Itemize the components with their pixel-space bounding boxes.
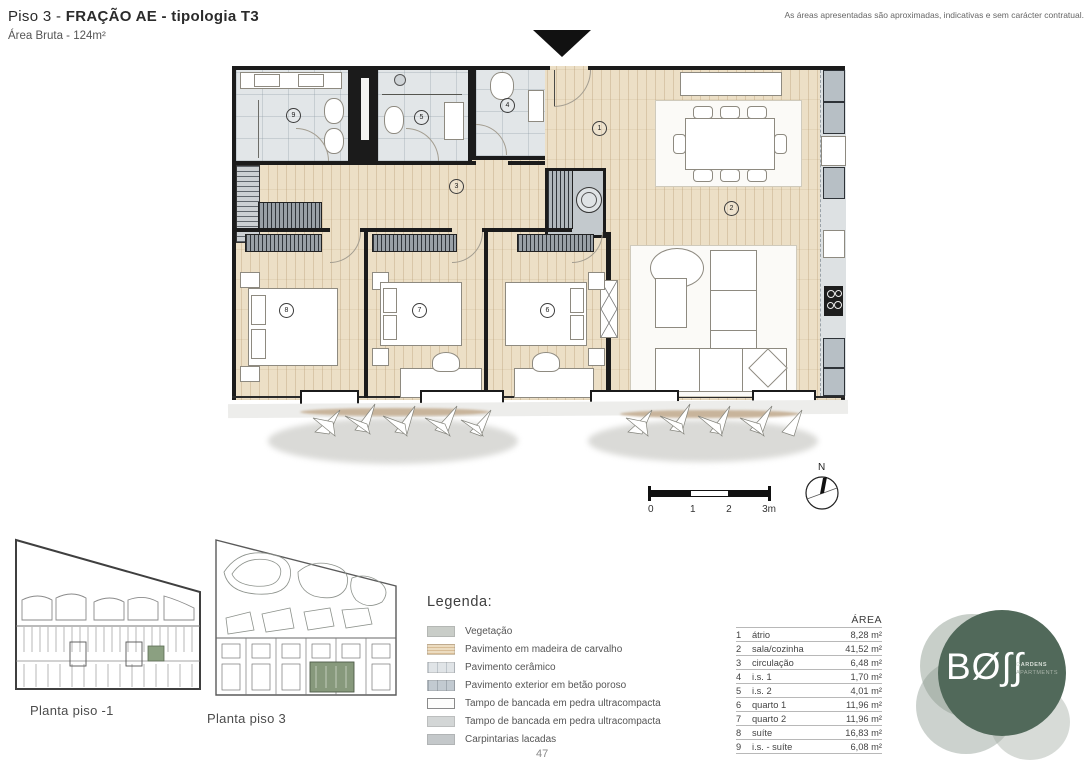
areas-table: ÁREA 1átrio8,28 m² 2sala/cozinha41,52 m²… (736, 612, 882, 754)
legend-item: Pavimento em madeira de carvalho (427, 644, 697, 654)
shelving (548, 171, 573, 229)
legend-label: Pavimento exterior em betão poroso (465, 680, 626, 691)
door-arc-entrance (554, 70, 591, 107)
nightstand (372, 348, 389, 366)
stone-countertop-grey-swatch (427, 716, 455, 727)
door-arc-bed7 (452, 232, 483, 263)
row-num: 7 (736, 712, 752, 726)
room-number-1: 1 (592, 121, 607, 136)
kitchen-cabinet (823, 368, 845, 396)
row-name: i.s. 1 (752, 670, 828, 684)
page-number: 47 (536, 748, 548, 760)
chair (432, 352, 460, 372)
row-area: 6,08 m² (828, 740, 882, 754)
room-number-5: 5 (414, 110, 429, 125)
table-row: 7quarto 211,96 m² (736, 712, 882, 726)
table-row: 3circulação6,48 m² (736, 656, 882, 670)
legend-label: Tampo de bancada em pedra ultracompacta (465, 698, 661, 709)
row-name: i.s. 2 (752, 684, 828, 698)
chair (720, 106, 740, 119)
row-num: 8 (736, 726, 752, 740)
kitchen-cabinet (823, 70, 845, 102)
row-area: 8,28 m² (828, 628, 882, 642)
pillow (251, 329, 266, 359)
areas-header-row: ÁREA (736, 612, 882, 628)
scale-label-0: 0 (648, 504, 654, 515)
row-num: 2 (736, 642, 752, 656)
north-label: N (818, 462, 848, 473)
nightstand (588, 348, 605, 366)
wall (360, 228, 452, 232)
wall (364, 232, 368, 398)
room-number-8: 8 (279, 303, 294, 318)
ceramic-floor-swatch (427, 662, 455, 673)
row-name: circulação (752, 656, 828, 670)
door-leaf (554, 70, 555, 106)
chair (532, 352, 560, 372)
row-area: 16,83 m² (828, 726, 882, 740)
table-row: 4i.s. 11,70 m² (736, 670, 882, 684)
scale-segment (690, 490, 729, 497)
chair (693, 106, 713, 119)
row-area: 4,01 m² (828, 684, 882, 698)
burner (835, 290, 842, 297)
corridor-wardrobe (258, 202, 322, 230)
miniplan-piso3-label: Planta piso 3 (207, 711, 402, 726)
row-area: 6,48 m² (828, 656, 882, 670)
logo-tagline-1: GARDENS (1016, 662, 1047, 668)
sink (254, 74, 280, 87)
disclaimer-text: As áreas apresentadas são aproximadas, i… (784, 10, 1084, 20)
scale-segment (651, 490, 690, 497)
shower-screen (258, 100, 259, 158)
vegetation-cluster (295, 392, 505, 448)
legend-label: Pavimento cerâmico (465, 662, 556, 673)
table-row: 2sala/cozinha41,52 m² (736, 642, 882, 656)
row-name: suíte (752, 726, 828, 740)
kitchen-cabinet (823, 167, 845, 199)
kitchen-cabinet (823, 102, 845, 134)
chair (747, 169, 767, 182)
legend-item: Tampo de bancada em pedra ultracompacta (427, 698, 697, 708)
table-row: 6quarto 111,96 m² (736, 698, 882, 712)
legend-label: Vegetação (465, 626, 512, 637)
page-title-bold: FRAÇÃO AE - tipologia T3 (66, 8, 259, 25)
cooktop (824, 286, 843, 316)
table-row: 9i.s. - suíte6,08 m² (736, 740, 882, 754)
room-suite-bathroom: 9 (236, 70, 352, 165)
areas-header: ÁREA (736, 612, 882, 628)
row-name: i.s. - suíte (752, 740, 828, 754)
row-area: 1,70 m² (828, 670, 882, 684)
legend-item: Carpintarias lacadas (427, 734, 697, 744)
logo-tagline-2: APARTMENTS (1016, 670, 1058, 676)
miniplan-minus1-drawing (8, 534, 208, 692)
sink (298, 74, 324, 87)
legend-label: Pavimento em madeira de carvalho (465, 644, 622, 655)
legend-label: Carpintarias lacadas (465, 734, 556, 745)
row-name: quarto 2 (752, 712, 828, 726)
north-arrow: N (800, 462, 848, 514)
page-title: Piso 3 - FRAÇÃO AE - tipologia T3 (8, 8, 259, 25)
door-arc-bed6 (572, 232, 603, 263)
wall (330, 161, 408, 165)
wardrobe (245, 234, 322, 252)
floor-plan: 9 5 4 (232, 66, 845, 400)
pillow (570, 288, 584, 313)
room-number-7: 7 (412, 303, 427, 318)
kitchen-cabinet (823, 338, 845, 368)
stone-countertop-white-swatch (427, 698, 455, 709)
legend-label: Tampo de bancada em pedra ultracompacta (465, 716, 661, 727)
table-row: 8suíte16,83 m² (736, 726, 882, 740)
nightstand (240, 366, 260, 382)
shower-drain (394, 74, 406, 86)
washing-machine-drum (581, 192, 597, 208)
room-number-9: 9 (286, 108, 301, 123)
wall (482, 228, 572, 232)
nightstand (588, 272, 605, 290)
chair (747, 106, 767, 119)
brochure-page: { "header": { "title_prefix": "Piso 3 - … (0, 0, 1092, 770)
coffee-table (655, 278, 687, 328)
scale-label-3: 3m (762, 504, 776, 515)
shaft-wall (352, 70, 378, 165)
miniplan-minus1-label: Planta piso -1 (30, 703, 208, 718)
room-number-4: 4 (500, 98, 515, 113)
row-num: 4 (736, 670, 752, 684)
room-number-2: 2 (724, 201, 739, 216)
wall (236, 228, 330, 232)
chair (673, 134, 686, 154)
chair (693, 169, 713, 182)
wall (588, 66, 845, 70)
desk (514, 368, 594, 398)
sink (528, 90, 544, 122)
legend-item: Vegetação (427, 626, 697, 636)
sofa-cushion-line (711, 330, 756, 331)
table-row: 1átrio8,28 m² (736, 628, 882, 642)
legend-item: Pavimento cerâmico (427, 662, 697, 672)
chair (720, 169, 740, 182)
row-area: 41,52 m² (828, 642, 882, 656)
row-num: 5 (736, 684, 752, 698)
row-num: 9 (736, 740, 752, 754)
sofa-cushion-line (711, 290, 756, 291)
scale-label-2: 2 (726, 504, 732, 515)
sofa-cushion-line (742, 349, 743, 391)
page-title-prefix: Piso 3 - (8, 8, 66, 25)
row-num: 6 (736, 698, 752, 712)
row-num: 1 (736, 628, 752, 642)
shower-screen (382, 94, 462, 95)
chair (774, 134, 787, 154)
legend-item: Tampo de bancada em pedra ultracompacta (427, 716, 697, 726)
dining-table (685, 118, 775, 170)
kitchen-sink (823, 230, 845, 258)
scale-segment (729, 490, 768, 497)
miniplan-piso3-drawing (210, 532, 402, 698)
row-num: 3 (736, 656, 752, 670)
room-number-6: 6 (540, 303, 555, 318)
scale-label-1: 1 (690, 504, 696, 515)
miniplan-piso-minus1: Planta piso -1 (8, 534, 208, 718)
lacquered-joinery-swatch (427, 734, 455, 745)
row-area: 11,96 m² (828, 712, 882, 726)
pillow (383, 315, 397, 340)
legend: Legenda: Vegetação Pavimento em madeira … (427, 594, 697, 752)
porous-concrete-swatch (427, 680, 455, 691)
pillow (383, 288, 397, 313)
sink (444, 102, 464, 140)
table-row: 5i.s. 24,01 m² (736, 684, 882, 698)
door-arc-bed8 (330, 232, 361, 263)
toilet (384, 106, 404, 134)
row-area: 11,96 m² (828, 698, 882, 712)
pillow (251, 295, 266, 325)
toilet (490, 72, 514, 100)
vegetation-cluster (612, 394, 812, 448)
wardrobe (372, 234, 457, 252)
entrance-arrow-icon (533, 30, 591, 57)
kitchen-island (680, 72, 782, 96)
brand-logo: BØ∫∫ GARDENS APARTMENTS (912, 596, 1082, 756)
row-name: quarto 1 (752, 698, 828, 712)
burner (827, 290, 835, 298)
logo-wordmark: BØ∫∫ (946, 648, 1024, 685)
miniplan-piso3: Planta piso 3 (210, 532, 402, 726)
legend-item: Pavimento exterior em betão poroso (427, 680, 697, 690)
appliance-oven (821, 136, 846, 166)
kitchen-counter-run (820, 70, 846, 396)
wood-floor-swatch (427, 644, 455, 655)
burner (834, 301, 842, 309)
wall (508, 161, 545, 165)
wall (440, 161, 476, 165)
row-name: sala/cozinha (752, 642, 828, 656)
sofa-cushion-line (699, 349, 700, 391)
burner (827, 302, 834, 309)
scale-tick (768, 486, 771, 501)
legend-title: Legenda: (427, 594, 697, 610)
room-number-3: 3 (449, 179, 464, 194)
bed-suite (248, 288, 338, 366)
scale-bar: 0 1 2 3m (648, 486, 776, 515)
wall (484, 232, 488, 398)
toilet (324, 98, 344, 124)
shaft (361, 78, 369, 140)
nightstand (240, 272, 260, 288)
gross-area-subtitle: Área Bruta - 124m² (8, 30, 106, 42)
compass-icon (800, 473, 844, 513)
pillow (570, 315, 584, 340)
vegetation-swatch (427, 626, 455, 637)
row-name: átrio (752, 628, 828, 642)
